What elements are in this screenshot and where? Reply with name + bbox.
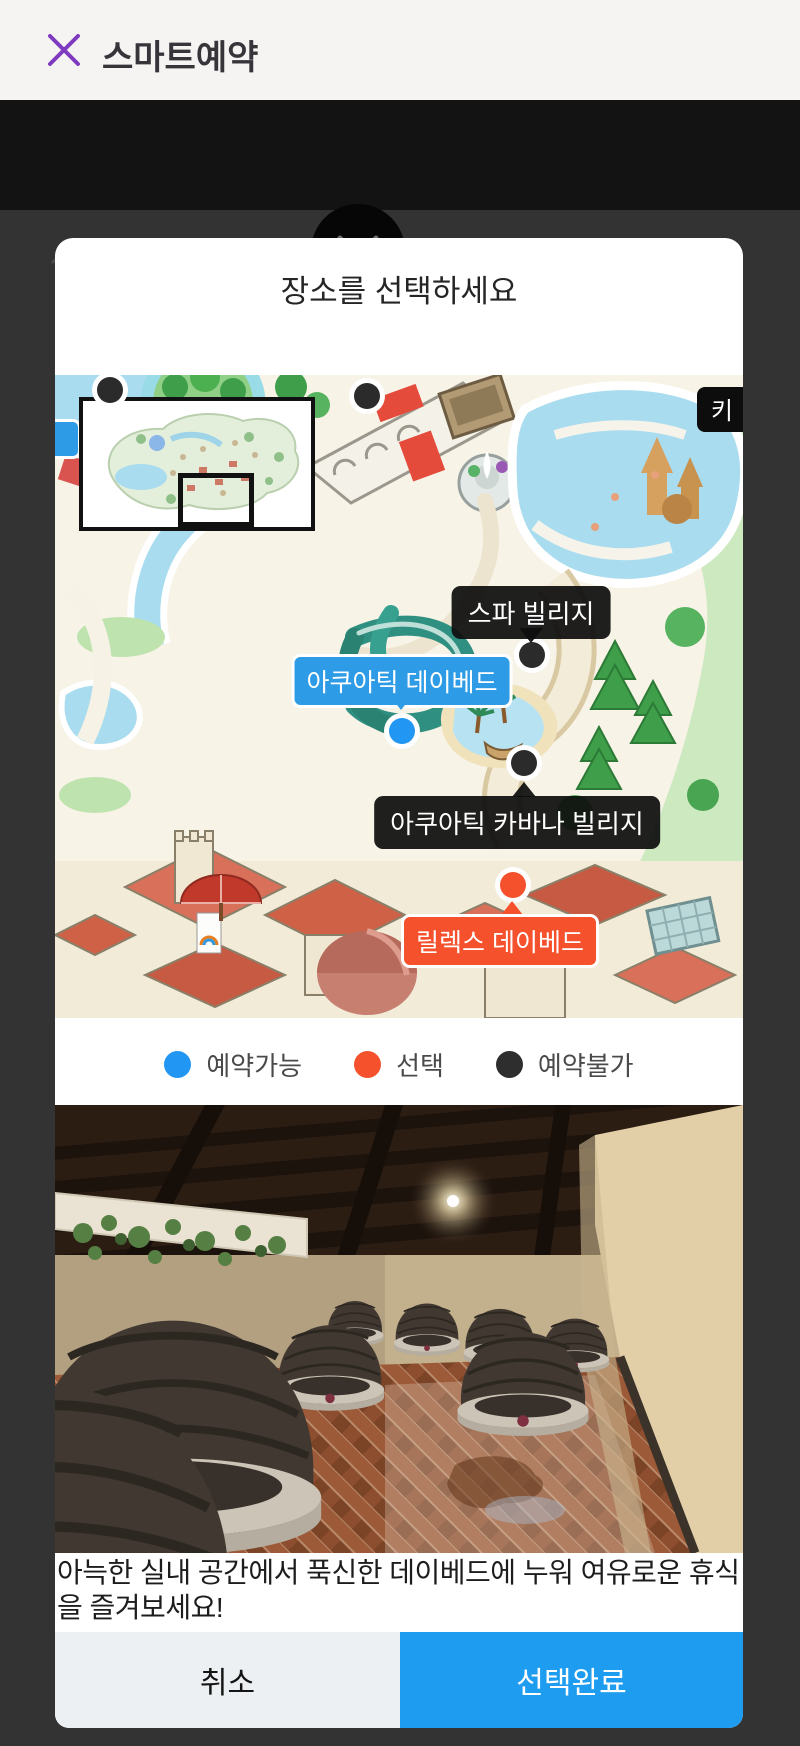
marker-label-relax-daybed[interactable]: 릴렉스 데이베드 (401, 914, 599, 968)
app-header: 스마트예약 (0, 0, 800, 100)
marker-dot-unlabeled-2[interactable] (354, 383, 380, 409)
park-map[interactable]: 키 스파 빌리지 아쿠아틱 데이베드 아쿠아틱 카바나 빌리지 릴렉스 데이베드 (55, 375, 743, 1018)
page-title: 스마트예약 (102, 30, 258, 79)
marker-pointer (512, 782, 536, 797)
dialog-title: 장소를 선택하세요 (55, 238, 743, 338)
minimap (79, 397, 315, 531)
cancel-button[interactable]: 취소 (55, 1632, 400, 1728)
location-select-dialog: 장소를 선택하세요 (55, 238, 743, 1728)
available-dot-icon (164, 1051, 191, 1078)
selected-dot-icon (354, 1051, 381, 1078)
legend-label: 예약가능 (206, 1046, 302, 1083)
legend-item-unavailable: 예약불가 (496, 1046, 634, 1083)
map-key-badge[interactable]: 키 (697, 387, 743, 432)
marker-pointer (390, 696, 412, 710)
marker-dot-aquatic-cabana-village[interactable] (511, 750, 537, 776)
close-icon[interactable] (40, 26, 88, 74)
marker-dot-spa-village[interactable] (519, 642, 545, 668)
marker-dot-unlabeled-1[interactable] (97, 377, 123, 403)
dialog-buttons: 취소 선택완료 (55, 1632, 743, 1728)
marker-label-aquatic-cabana-village[interactable]: 아쿠아틱 카바나 빌리지 (374, 796, 660, 849)
legend-label: 예약불가 (538, 1046, 634, 1083)
marker-dot-aquatic-daybed[interactable] (389, 718, 415, 744)
description-text: 아늑한 실내 공간에서 푹신한 데이베드에 누워 여유로운 휴식을 즐겨보세요! (55, 1555, 743, 1625)
marker-pointer (519, 628, 543, 643)
park-navbar: 빌리지 (0, 100, 800, 210)
confirm-button[interactable]: 선택완료 (400, 1632, 743, 1728)
legend-label: 선택 (396, 1046, 444, 1083)
marker-dot-relax-daybed[interactable] (500, 872, 526, 898)
legend-item-available: 예약가능 (164, 1046, 302, 1083)
map-legend: 예약가능 선택 예약불가 (55, 1042, 743, 1086)
legend-item-selected: 선택 (354, 1046, 444, 1083)
daybed-photo (55, 1105, 743, 1553)
marker-pointer (501, 901, 523, 915)
minimap-viewport[interactable] (178, 473, 254, 527)
partial-marker-label (55, 419, 81, 459)
unavailable-dot-icon (496, 1051, 523, 1078)
